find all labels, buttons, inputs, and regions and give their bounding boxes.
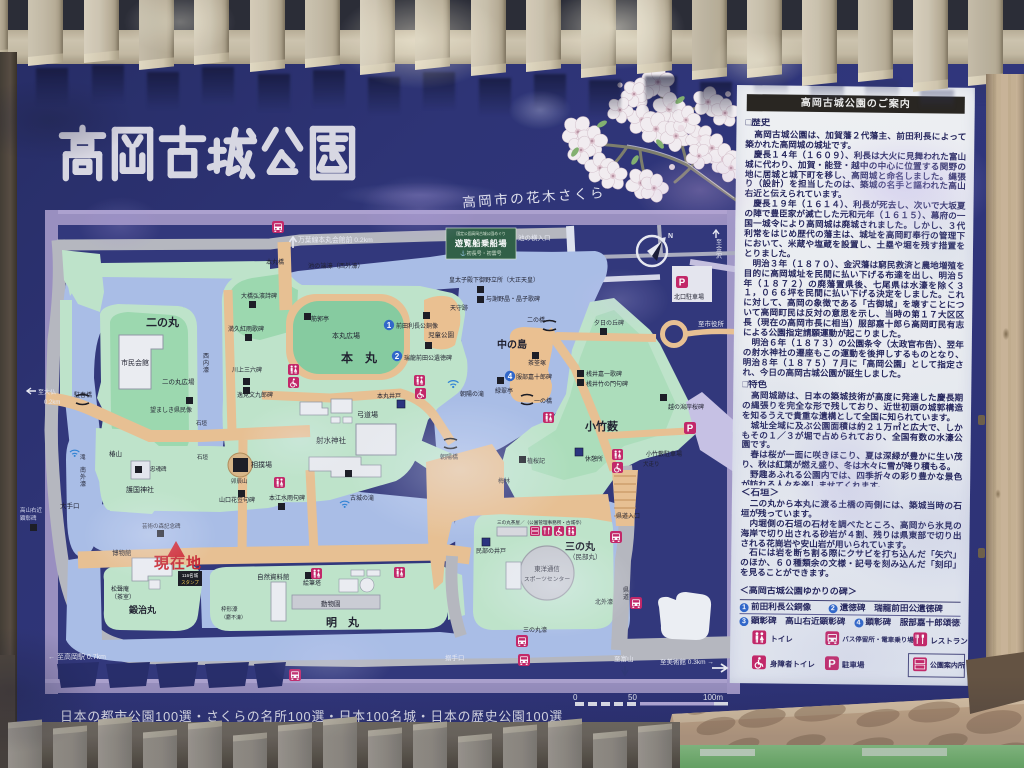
svg-text:2: 2 <box>395 352 400 361</box>
svg-text:県道入口: 県道入口 <box>616 512 640 520</box>
svg-text:弓道場: 弓道場 <box>357 410 378 419</box>
svg-text:顕彰碑: 顕彰碑 <box>20 514 37 522</box>
svg-text:小竹藪駐車場: 小竹藪駐車場 <box>646 450 682 458</box>
svg-text:古城の滝: 古城の滝 <box>350 494 374 502</box>
svg-text:相撲場: 相撲場 <box>251 460 272 469</box>
svg-text:県: 県 <box>623 587 629 594</box>
svg-text:山口花笠句碑: 山口花笠句碑 <box>219 496 255 504</box>
svg-text:博物館: 博物館 <box>112 548 132 557</box>
svg-text:三の丸: 三の丸 <box>565 540 596 553</box>
svg-text:芸術の森記念碑: 芸術の森記念碑 <box>142 522 181 530</box>
svg-text:護国神社: 護国神社 <box>126 485 154 494</box>
svg-text:桟井竹の門句碑: 桟井竹の門句碑 <box>586 380 628 388</box>
svg-text:満久紅雨歌碑: 満久紅雨歌碑 <box>228 325 264 333</box>
svg-text:瑞龍前田公遺徳碑: 瑞龍前田公遺徳碑 <box>404 354 452 362</box>
svg-text:内: 内 <box>203 359 209 367</box>
svg-text:与謝野晶・晶子歌碑: 与謝野晶・晶子歌碑 <box>486 295 540 303</box>
svg-text:朝陽の滝: 朝陽の滝 <box>460 390 484 398</box>
svg-text:南: 南 <box>80 466 86 474</box>
svg-text:石垣: 石垣 <box>197 453 209 461</box>
svg-text:濠: 濠 <box>80 480 86 488</box>
svg-text:116名城: 116名城 <box>182 572 199 579</box>
svg-text:万葉線本丸会館前 0.2km: 万葉線本丸会館前 0.2km <box>298 235 373 244</box>
svg-text:滝: 滝 <box>80 453 86 461</box>
svg-text:⚓初長号・初雲号: ⚓初長号・初雲号 <box>460 250 501 257</box>
svg-text:至大仏: 至大仏 <box>38 388 56 396</box>
svg-text:前田利長公銅像: 前田利長公銅像 <box>396 322 438 330</box>
svg-text:忠魂碑: 忠魂碑 <box>150 465 167 473</box>
svg-text:皇太子殿下御野立所（大正天皇）: 皇太子殿下御野立所（大正天皇） <box>449 276 539 284</box>
svg-text:P: P <box>687 424 694 435</box>
svg-text:筋郭亭: 筋郭亭 <box>311 315 329 323</box>
svg-text:川上三六碑: 川上三六碑 <box>232 366 262 374</box>
svg-text:国定公園高岡古城公園めぐり: 国定公園高岡古城公園めぐり <box>456 231 505 236</box>
svg-text:梅林: 梅林 <box>498 477 510 485</box>
svg-text:1: 1 <box>387 321 392 330</box>
svg-text:二の橋: 二の橋 <box>527 316 545 324</box>
svg-text:本 丸: 本 丸 <box>341 350 378 365</box>
svg-text:現在地: 現在地 <box>154 554 202 572</box>
svg-text:至市役所: 至市役所 <box>698 319 725 328</box>
svg-text:大手口: 大手口 <box>60 501 80 510</box>
svg-text:至: 至 <box>716 239 722 246</box>
svg-text:高山右近: 高山右近 <box>20 506 43 514</box>
svg-text:服部嘉十郎碑: 服部嘉十郎碑 <box>516 373 552 381</box>
svg-text:本丸広場: 本丸広場 <box>332 331 360 340</box>
svg-text:射水神社: 射水神社 <box>316 435 346 445</box>
svg-text:二の丸広場: 二の丸広場 <box>162 377 195 386</box>
svg-text:本丸井戸: 本丸井戸 <box>377 392 401 400</box>
svg-text:卯辰山: 卯辰山 <box>231 477 248 485</box>
svg-text:0.2km: 0.2km <box>44 400 60 406</box>
svg-text:石垣: 石垣 <box>196 419 208 427</box>
svg-text:茶筌塚: 茶筌塚 <box>528 359 546 367</box>
svg-text:夕日の丘碑: 夕日の丘碑 <box>594 319 624 327</box>
svg-text:越の潟岸桜碑: 越の潟岸桜碑 <box>668 403 704 411</box>
svg-text:椿山: 椿山 <box>109 449 122 458</box>
svg-text:池の横入口: 池の横入口 <box>518 233 551 242</box>
svg-text:外: 外 <box>80 473 86 481</box>
svg-text:一の橋: 一の橋 <box>534 397 552 405</box>
svg-text:濠: 濠 <box>203 366 209 374</box>
svg-text:自然資料館: 自然資料館 <box>257 572 290 581</box>
svg-text:望ましき県民像: 望ましき県民像 <box>150 406 192 414</box>
svg-text:絵筆塔: 絵筆塔 <box>303 579 321 587</box>
svg-text:小竹薮: 小竹薮 <box>584 419 618 433</box>
svg-text:4: 4 <box>508 372 513 381</box>
svg-text:三の丸茶屋／（公園管理事務所・古城亭）: 三の丸茶屋／（公園管理事務所・古城亭） <box>497 519 584 526</box>
svg-text:植桜記: 植桜記 <box>527 457 545 465</box>
svg-text:（民部丸）: （民部丸） <box>569 552 602 561</box>
svg-text:休憩所: 休憩所 <box>585 455 603 463</box>
svg-text:沢: 沢 <box>716 252 722 260</box>
svg-text:東洋通信: 東洋通信 <box>534 564 560 573</box>
svg-text:北口駐車場: 北口駐車場 <box>674 293 704 301</box>
svg-text:松聲庵: 松聲庵 <box>111 585 129 593</box>
svg-text:中の島: 中の島 <box>497 338 527 351</box>
svg-text:本江水雨句碑: 本江水雨句碑 <box>269 494 305 502</box>
svg-text:N: N <box>668 233 673 240</box>
svg-text:市民会館: 市民会館 <box>121 358 149 367</box>
svg-text:池の端濠（西外濠）: 池の端濠（西外濠） <box>308 262 364 270</box>
svg-text:犬走り: 犬走り <box>643 460 660 468</box>
svg-text:金: 金 <box>716 245 722 253</box>
svg-text:西: 西 <box>203 353 209 360</box>
svg-text:民部の井戸: 民部の井戸 <box>476 547 506 555</box>
svg-text:二の丸: 二の丸 <box>146 315 180 329</box>
svg-text:天守跡: 天守跡 <box>450 304 468 312</box>
svg-text:大橋弘濱詩碑: 大橋弘濱詩碑 <box>241 292 277 300</box>
svg-text:スタンプ: スタンプ <box>181 579 199 586</box>
svg-text:桟井嘉一歌碑: 桟井嘉一歌碑 <box>586 370 622 378</box>
svg-text:スポーツセンター: スポーツセンター <box>524 575 570 583</box>
svg-text:本丸橋: 本丸橋 <box>266 258 284 266</box>
svg-text:児童公園: 児童公園 <box>428 330 454 339</box>
svg-text:P: P <box>679 278 686 289</box>
svg-text:緑翠亭: 緑翠亭 <box>495 387 513 395</box>
svg-text:逸見文九郎碑: 逸見文九郎碑 <box>237 391 273 399</box>
svg-text:朝陽橋: 朝陽橋 <box>440 453 458 461</box>
svg-text:遊覧船乗船場: 遊覧船乗船場 <box>455 238 507 248</box>
